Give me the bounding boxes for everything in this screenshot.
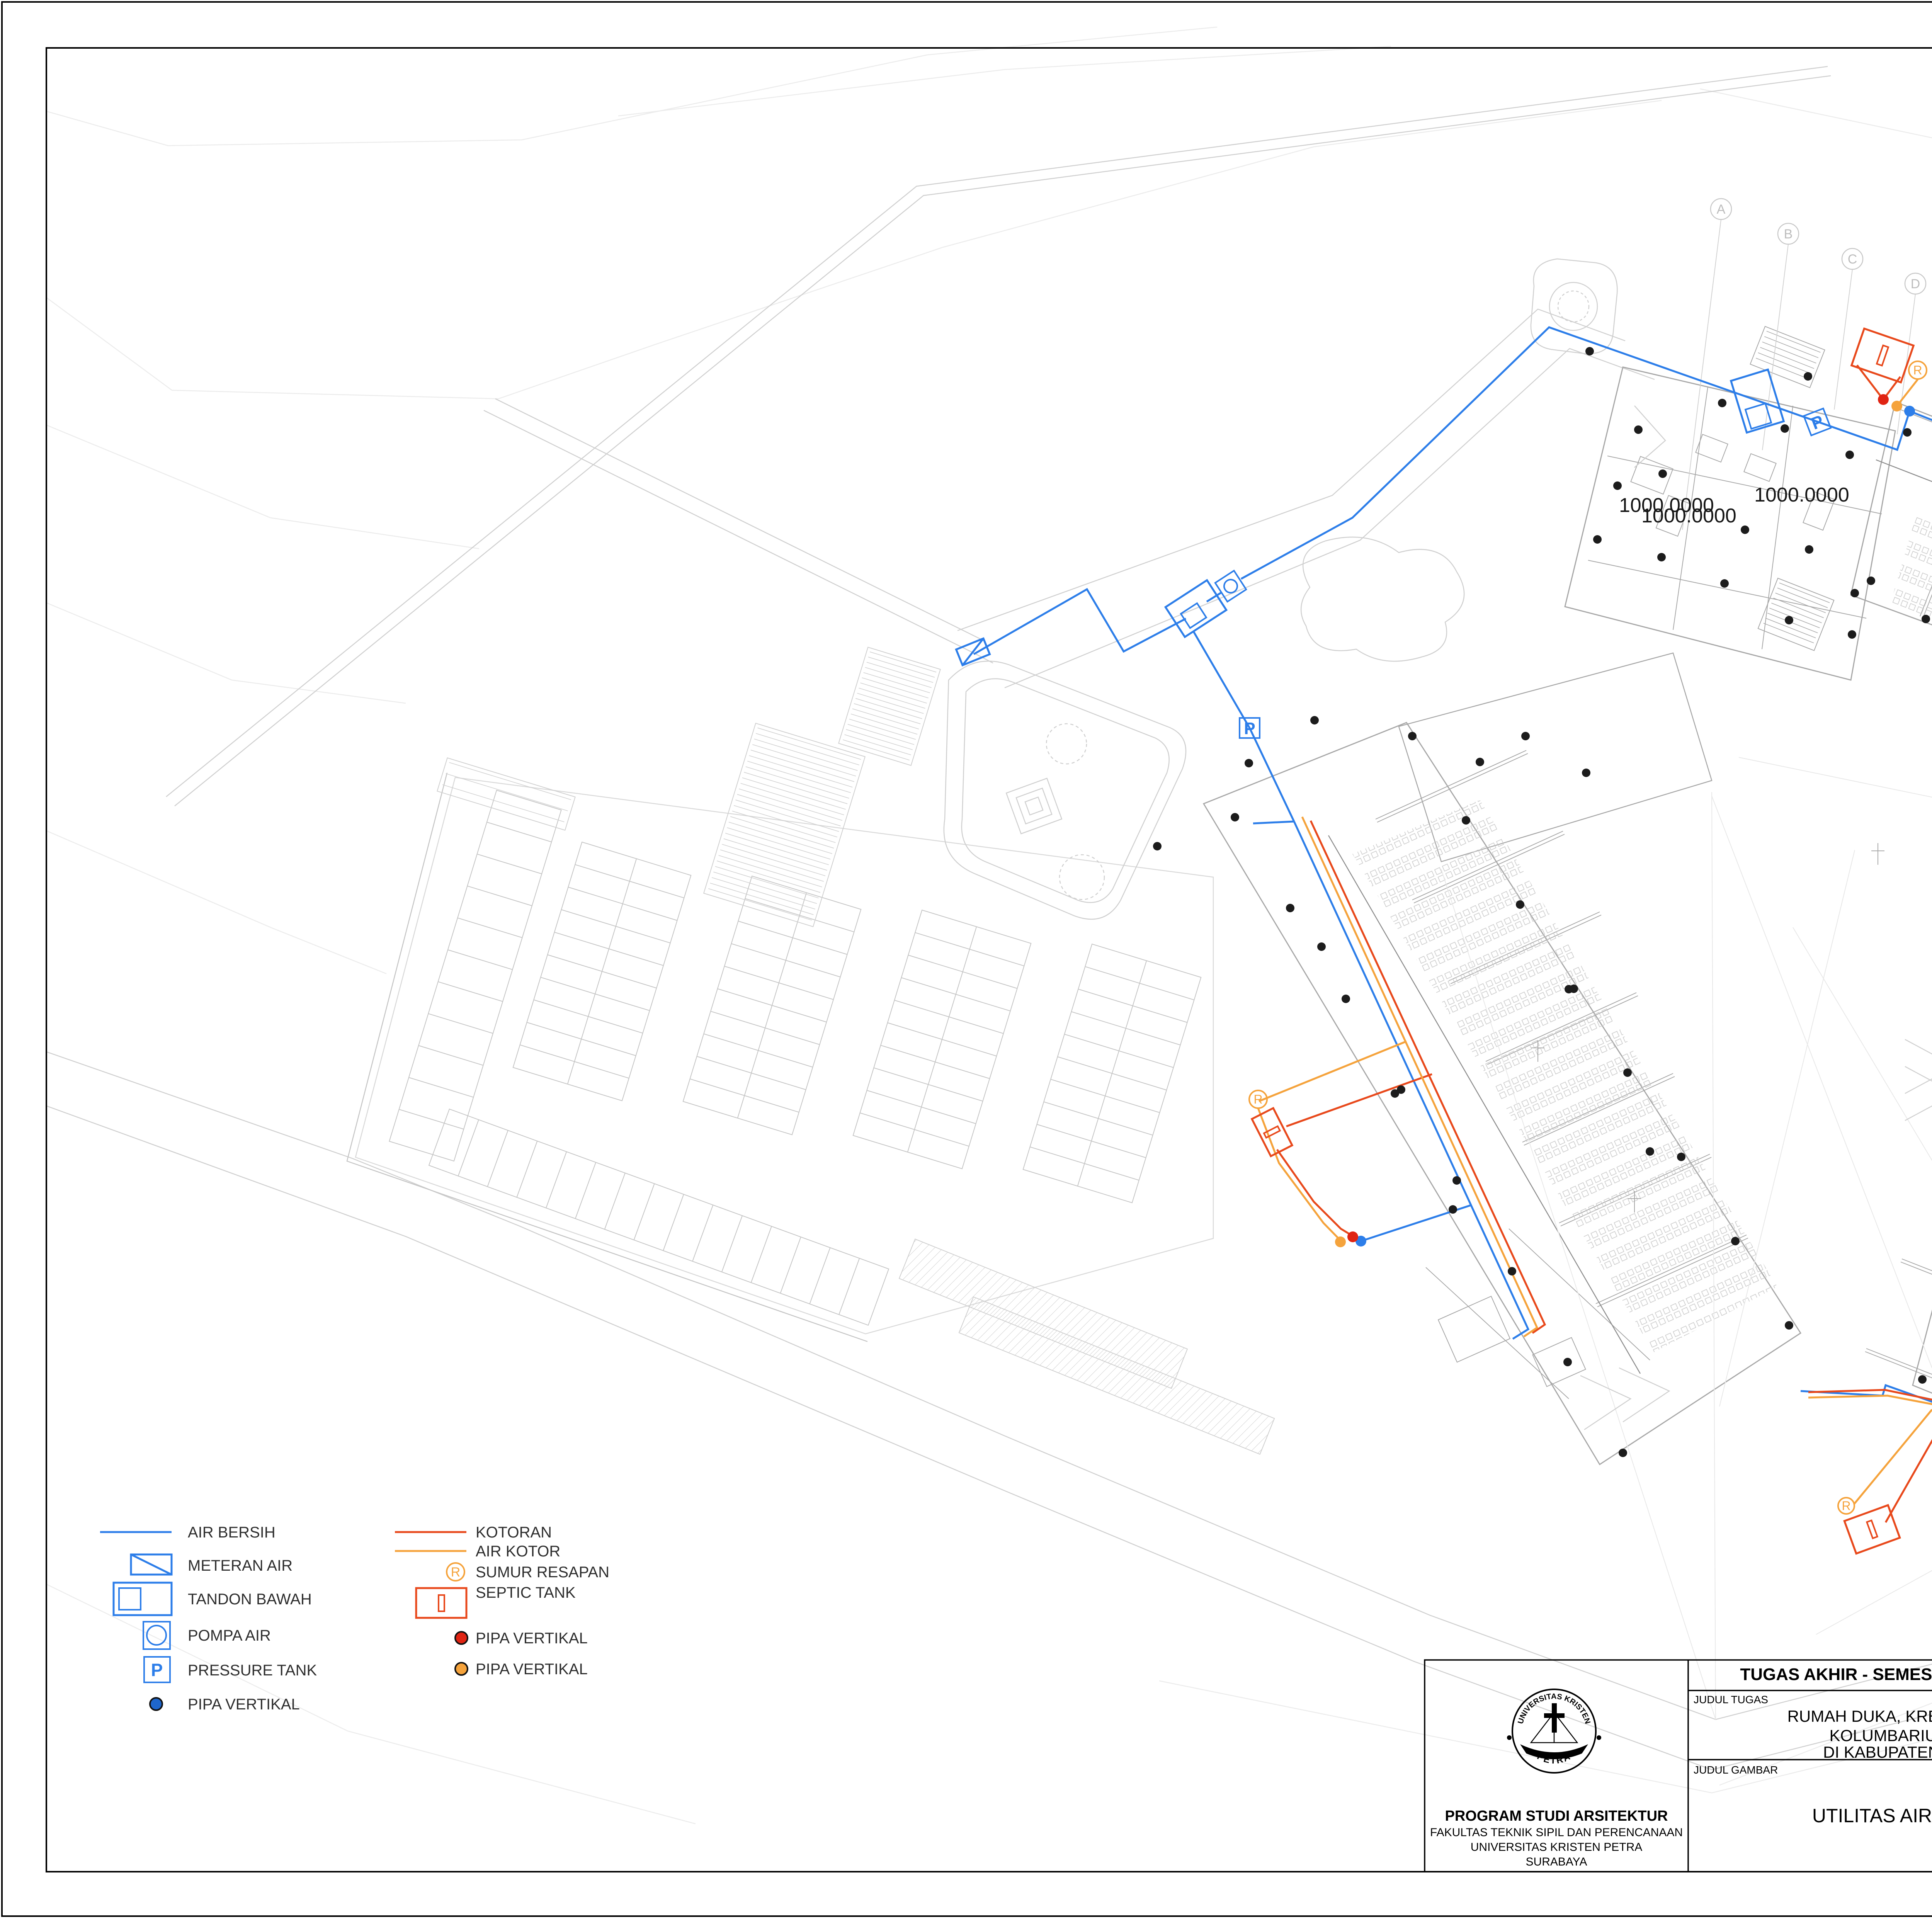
- svg-text:1000.0000: 1000.0000: [1641, 505, 1736, 527]
- svg-text:AIR KOTOR: AIR KOTOR: [476, 1543, 560, 1560]
- svg-text:JUDUL TUGAS: JUDUL TUGAS: [1694, 1694, 1768, 1706]
- svg-text:TUGAS AKHIR - SEMESTER GENAP 2: TUGAS AKHIR - SEMESTER GENAP 2023/2024: [1740, 1665, 1932, 1684]
- svg-text:DI KABUPATEN PASURUAN: DI KABUPATEN PASURUAN: [1823, 1743, 1932, 1761]
- svg-text:RUMAH DUKA, KREMATORIUM, DAN: RUMAH DUKA, KREMATORIUM, DAN: [1787, 1707, 1932, 1725]
- svg-text:R: R: [1913, 363, 1922, 377]
- svg-text:PIPA VERTIKAL: PIPA VERTIKAL: [476, 1661, 588, 1678]
- svg-text:P: P: [151, 1660, 163, 1680]
- svg-text:D: D: [1911, 277, 1920, 291]
- svg-text:UNIVERSITAS KRISTEN PETRA: UNIVERSITAS KRISTEN PETRA: [1471, 1841, 1643, 1854]
- svg-text:P: P: [1809, 412, 1826, 433]
- svg-text:PRESSURE TANK: PRESSURE TANK: [188, 1662, 317, 1679]
- svg-text:JUDUL GAMBAR: JUDUL GAMBAR: [1694, 1764, 1778, 1776]
- svg-text:1000.0000: 1000.0000: [1754, 484, 1849, 506]
- svg-text:SEPTIC TANK: SEPTIC TANK: [476, 1584, 576, 1601]
- svg-text:PROGRAM STUDI ARSITEKTUR: PROGRAM STUDI ARSITEKTUR: [1445, 1808, 1668, 1824]
- svg-text:B: B: [1784, 227, 1793, 241]
- svg-text:R: R: [451, 1565, 461, 1580]
- svg-text:KOTORAN: KOTORAN: [476, 1524, 552, 1541]
- svg-text:KOLUMBARIUM NASRANI: KOLUMBARIUM NASRANI: [1829, 1726, 1932, 1745]
- svg-text:TANDON BAWAH: TANDON BAWAH: [188, 1591, 312, 1608]
- svg-text:FAKULTAS TEKNIK SIPIL DAN PERE: FAKULTAS TEKNIK SIPIL DAN PERENCANAAN: [1430, 1826, 1683, 1839]
- svg-text:PIPA VERTIKAL: PIPA VERTIKAL: [188, 1696, 300, 1713]
- svg-text:SUMUR RESAPAN: SUMUR RESAPAN: [476, 1564, 609, 1581]
- svg-text:UTILITAS AIR: UTILITAS AIR: [1812, 1805, 1932, 1826]
- svg-text:C: C: [1848, 252, 1857, 267]
- svg-text:P: P: [1244, 719, 1255, 738]
- svg-text:R: R: [1842, 1499, 1850, 1513]
- svg-text:R: R: [1253, 1092, 1262, 1106]
- svg-text:METERAN AIR: METERAN AIR: [188, 1557, 293, 1574]
- svg-text:A: A: [1717, 202, 1726, 217]
- svg-text:SURABAYA: SURABAYA: [1526, 1855, 1587, 1868]
- svg-text:PIPA VERTIKAL: PIPA VERTIKAL: [476, 1630, 588, 1647]
- svg-text:AIR BERSIH: AIR BERSIH: [188, 1524, 276, 1541]
- svg-text:POMPA AIR: POMPA AIR: [188, 1627, 271, 1644]
